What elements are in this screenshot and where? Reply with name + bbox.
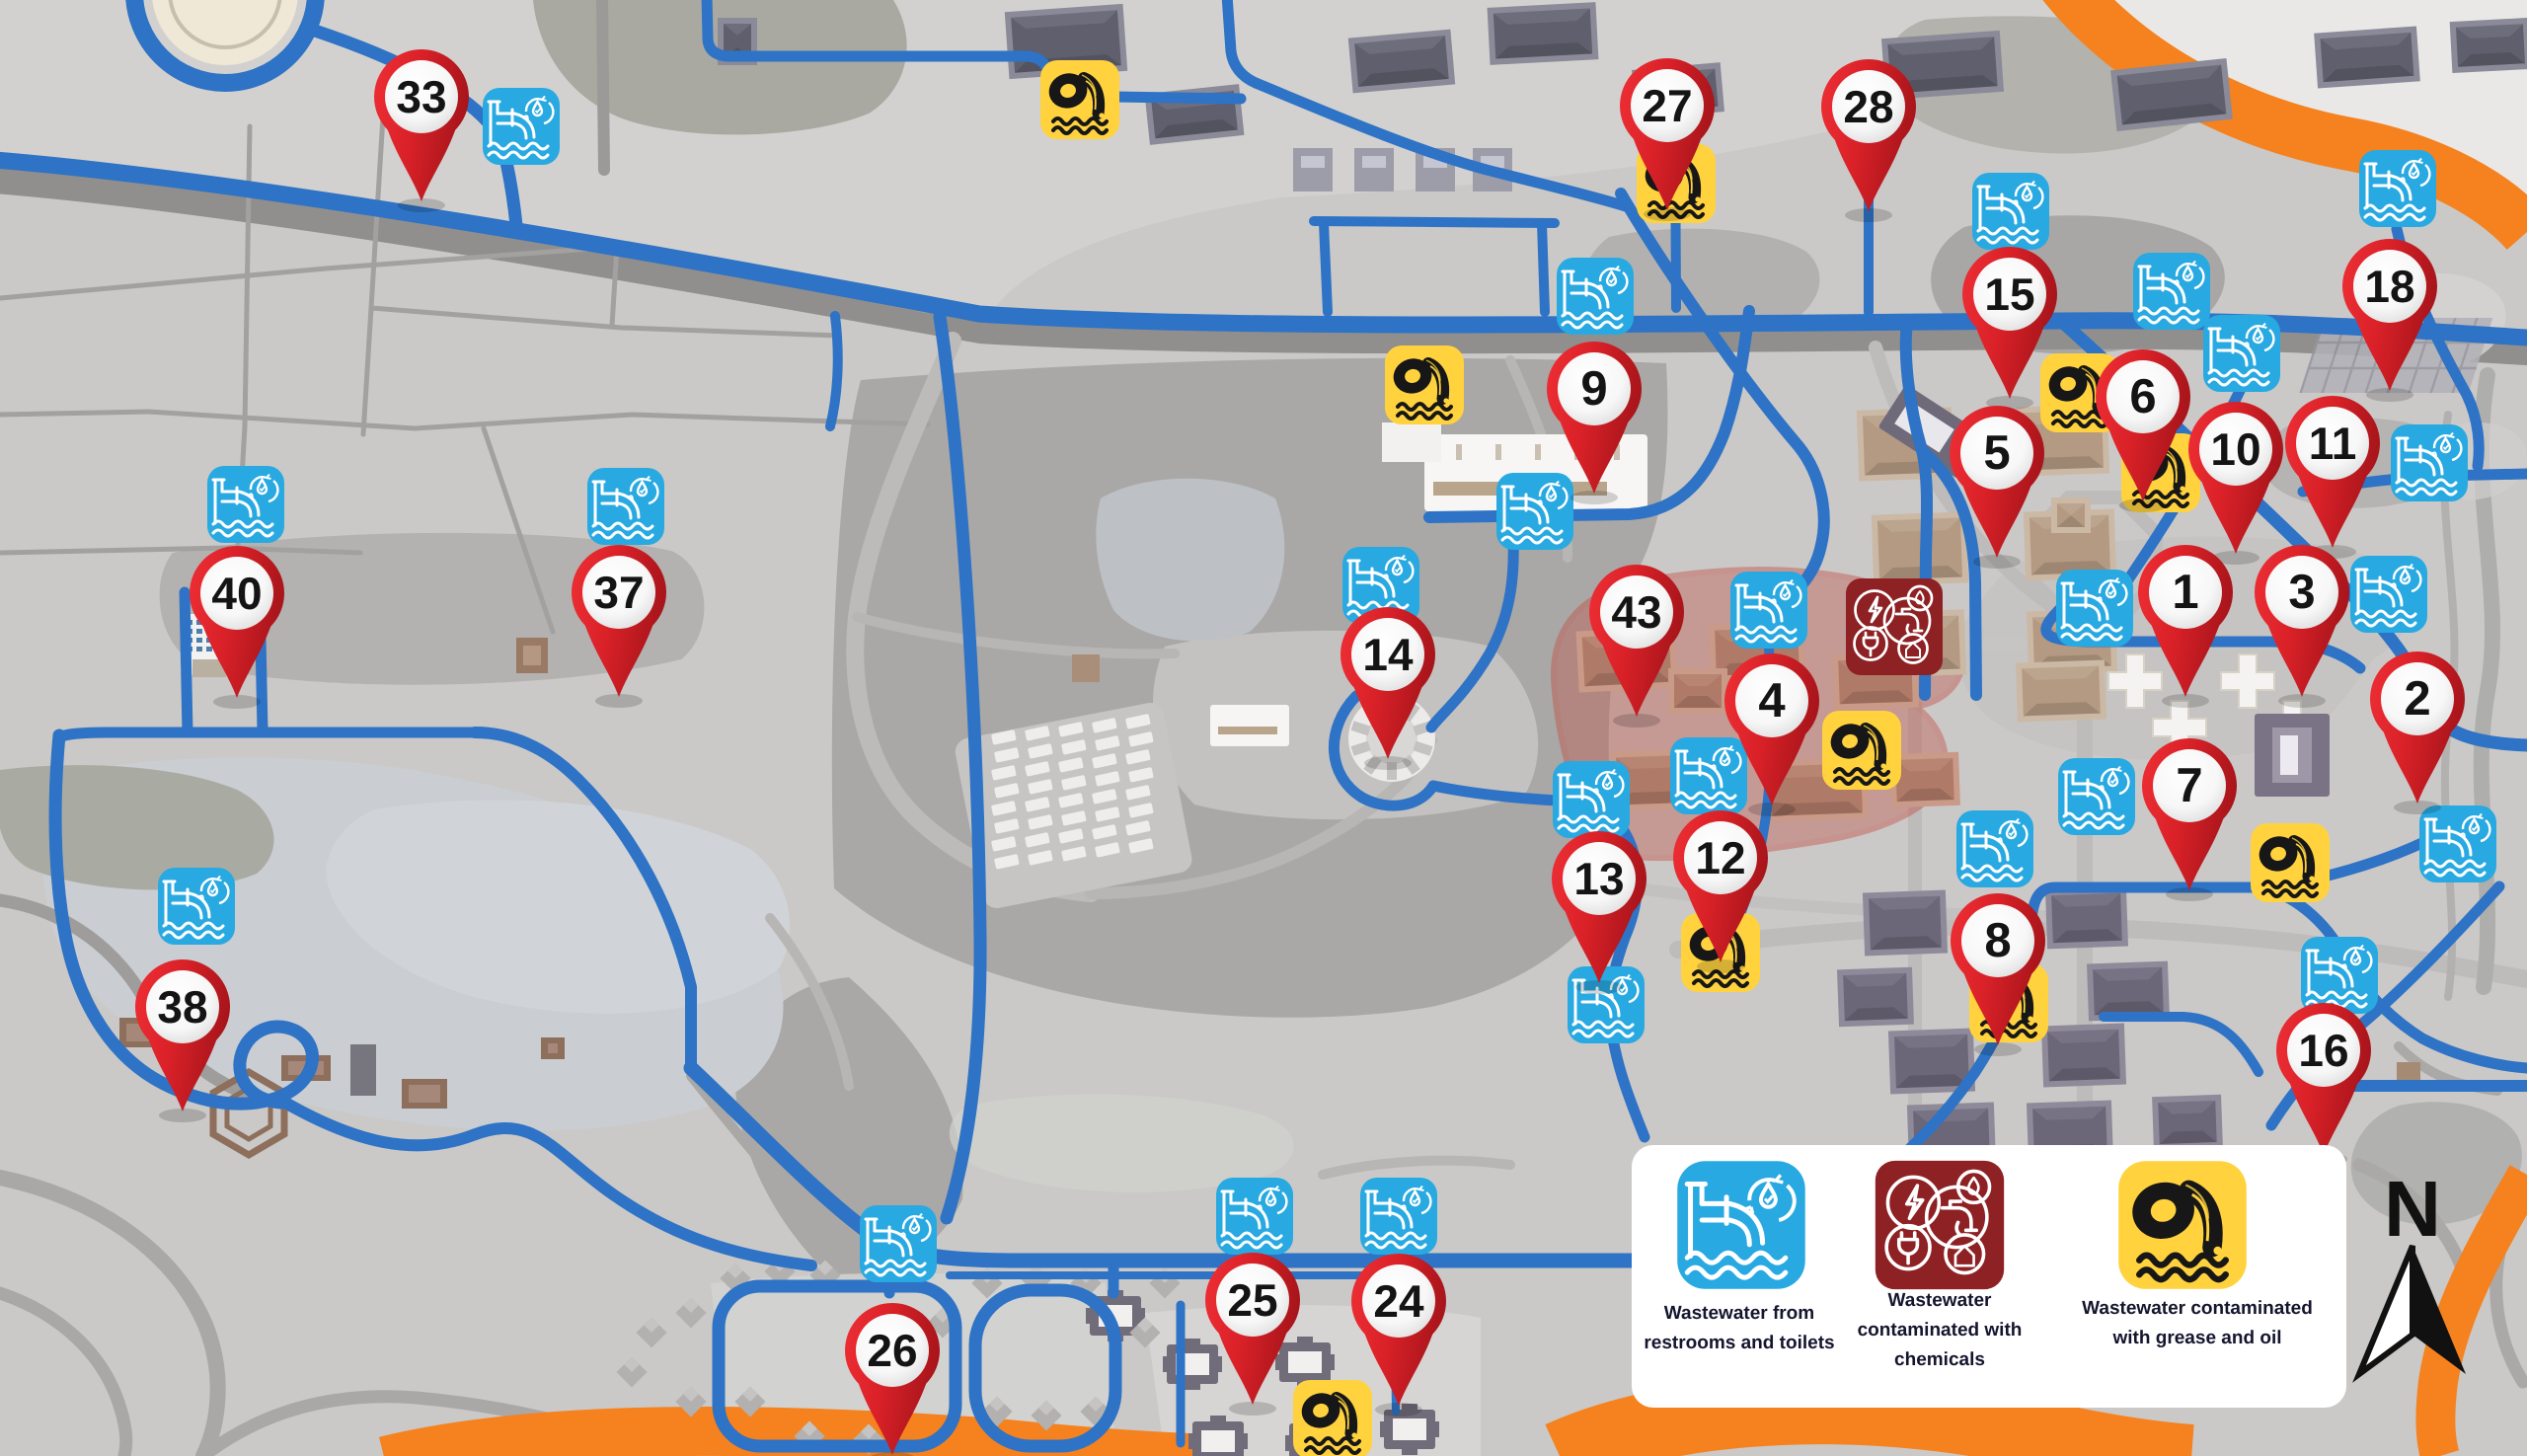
svg-text:2: 2: [2404, 672, 2430, 726]
svg-text:8: 8: [1984, 914, 2011, 967]
svg-text:with grease and oil: with grease and oil: [2111, 1328, 2281, 1348]
svg-text:4: 4: [1758, 674, 1785, 728]
svg-text:10: 10: [2210, 423, 2260, 475]
svg-text:28: 28: [1843, 81, 1893, 132]
svg-text:33: 33: [396, 71, 446, 122]
svg-text:5: 5: [1983, 426, 2010, 480]
svg-text:26: 26: [867, 1325, 917, 1376]
svg-text:15: 15: [1984, 268, 2034, 320]
svg-text:restrooms and toilets: restrooms and toilets: [1644, 1333, 1834, 1353]
svg-text:Wastewater contaminated: Wastewater contaminated: [2082, 1298, 2313, 1319]
svg-text:25: 25: [1227, 1274, 1277, 1326]
svg-text:18: 18: [2364, 261, 2414, 312]
svg-text:16: 16: [2298, 1025, 2348, 1076]
svg-text:1: 1: [2172, 566, 2198, 619]
svg-text:12: 12: [1695, 832, 1745, 883]
svg-text:chemicals: chemicals: [1894, 1349, 1985, 1370]
svg-text:14: 14: [1362, 629, 1414, 680]
svg-text:38: 38: [157, 981, 207, 1033]
svg-text:11: 11: [2309, 418, 2357, 469]
svg-text:24: 24: [1373, 1275, 1424, 1327]
svg-text:43: 43: [1611, 586, 1661, 638]
svg-text:Wastewater from: Wastewater from: [1664, 1303, 1814, 1324]
svg-text:37: 37: [593, 567, 644, 618]
svg-text:Wastewater: Wastewater: [1888, 1290, 1992, 1311]
svg-text:7: 7: [2176, 759, 2202, 812]
svg-text:N: N: [2384, 1165, 2441, 1253]
svg-text:40: 40: [211, 568, 262, 619]
svg-text:13: 13: [1573, 853, 1624, 904]
svg-text:9: 9: [1580, 362, 1607, 416]
svg-text:3: 3: [2288, 566, 2315, 619]
svg-text:6: 6: [2129, 370, 2156, 423]
svg-text:27: 27: [1642, 80, 1692, 131]
svg-text:contaminated with: contaminated with: [1858, 1320, 2023, 1341]
